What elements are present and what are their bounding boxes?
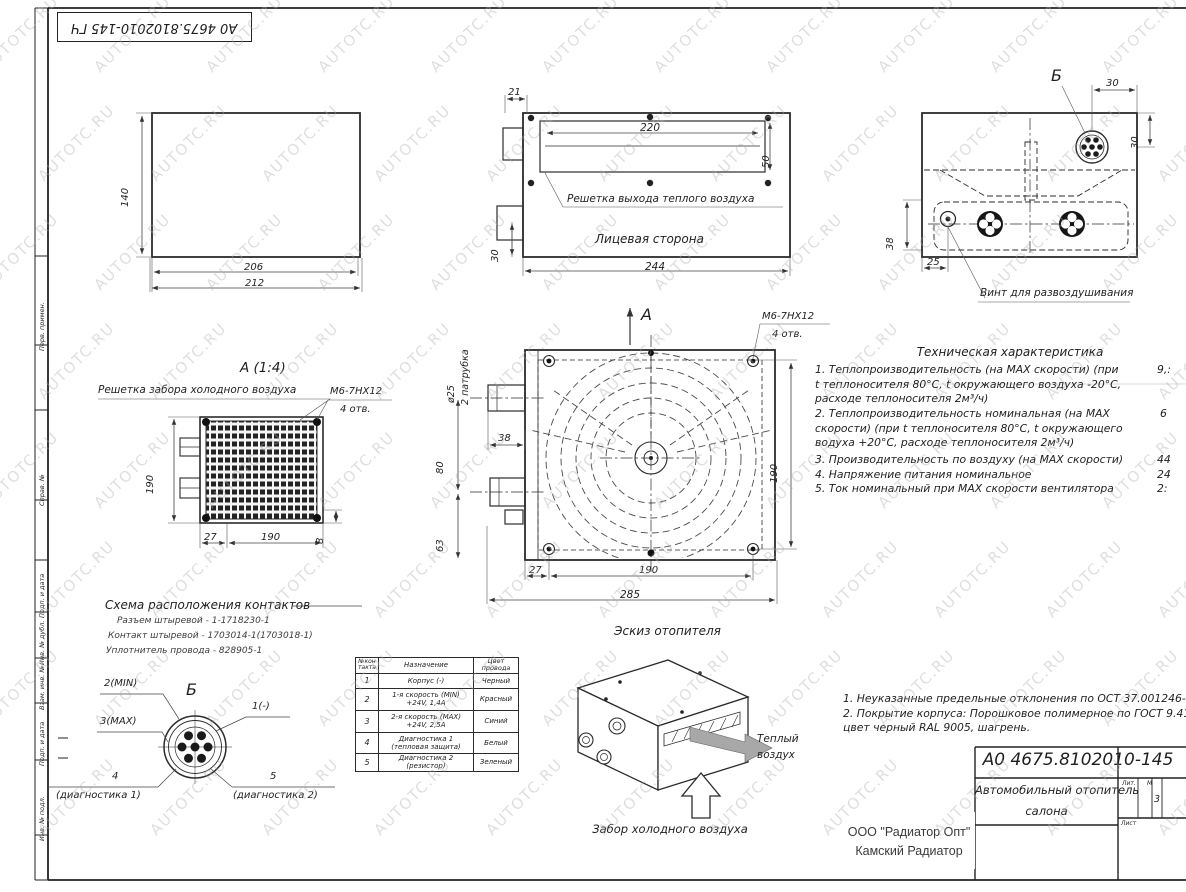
pin-function-line2: (тепловая защита) [380,743,472,751]
tech-value-1: 9,: [1157,363,1186,376]
note-2: 2. Покрытие корпуса: Порошковое полимерн… [843,707,1186,720]
contacts-title: Схема расположения контактов [105,598,310,612]
pin-function-line2: +24V, 1,4А [380,699,472,707]
supplier-box: ООО "Радиатор Опт" Камский Радиатор [843,812,975,869]
pin-function-line2: +24V, 2,5А [380,721,472,729]
pin-function: Корпус (-) [379,673,474,688]
dim-206: 206 [244,262,263,273]
warm-air-label-1: Теплый [757,733,799,745]
dim-190-grille-h: 190 [261,532,280,543]
pipe-qty-label: 2 патрубка [460,349,471,405]
tech-value-3: 44 [1157,453,1186,466]
titleblock-lit-label: Лит. [1122,780,1136,787]
frame-label-vzam-inv: Взам. инв. № [38,666,46,710]
titleblock-name-2: салона [975,804,1118,818]
tech-line-8: 4. Напряжение питания номинальное [815,468,1031,481]
warm-air-label-2: воздух [757,749,795,761]
grille-bolt-label: М6-7НХ12 [330,386,382,397]
pin-function-line1: 2-я скорость (MAX) [380,713,472,721]
dim-27-main: 27 [529,565,542,576]
dim-190-main-h: 190 [639,565,658,576]
tech-value-4: 24 [1157,468,1186,481]
tech-line-5: скорости) (при t теплоносителя 80°С, t о… [815,422,1123,435]
table-row: 1 Корпус (-) Черный [356,673,519,688]
dim-38-main: 38 [498,433,511,444]
frame-label-perv-primen: Перв. примен. [38,302,46,351]
pin-number: 3 [356,710,379,732]
note-2-cont: цвет черный RAL 9005, шагрень. [843,721,1030,734]
dim-30-conn-x: 30 [1106,78,1119,89]
tech-line-7: 3. Производительность по воздуху (на MAX… [815,453,1123,466]
pin5-note-label: (диагностика 2) [233,790,318,801]
detail-b-label: Б [1051,66,1062,85]
front-grille-label: Решетка выхода теплого воздуха [567,193,754,205]
dim-212: 212 [245,278,264,289]
dim-244: 244 [645,261,665,273]
grille-view-drawing [98,399,392,548]
tech-spec-title: Техническая характеристика [900,345,1120,359]
contact-table: №кон такта Назначение Цвет провода 1 Кор… [355,657,519,772]
supplier-line-2: Камский Радиатор [843,842,975,861]
dim-25: 25 [927,257,940,268]
note-1: 1. Неуказанные предельные отклонения по … [843,692,1186,705]
front-face-label: Лицевая сторона [592,232,707,246]
pin-function-line1: Диагностика 2 [380,754,472,762]
pin-function-line1: Диагностика 1 [380,735,472,743]
tech-line-2: t теплоносителя 80°С, t окружающего возд… [815,378,1121,391]
pin-function: Диагностика 1(тепловая защита) [379,732,474,753]
dim-30-conn-y: 30 [1130,136,1141,149]
tech-value-2: 6 [1160,407,1186,420]
top-stamp: А0 4675.8102010-145 ГЧ [57,12,252,42]
dim-21: 21 [508,87,521,98]
frame-label-podp-data-2: Подп. и дата [38,722,46,766]
pin-wire-color: Синий [474,710,519,732]
dim-8-grille: 8 [315,538,326,544]
dim-190-main-v: 190 [769,464,780,483]
frame-label-inv-podl: Инв. № подл. [38,796,46,841]
titleblock-designation: А0 4675.8102010-145 [978,750,1178,770]
titleblock-sheet-label: Лист [1121,820,1136,827]
table-row: 5 Диагностика 2(резистор) Зеленый [356,753,519,771]
drawing-sheet: { "watermark": "AUTOTC.RU", "sheet": { "… [0,0,1186,892]
cold-air-label: Забор холодного воздуха [585,822,755,836]
titleblock-mass-label: М [1147,780,1152,787]
grille-label: Решетка забора холодного воздуха [98,384,296,396]
pin4-label: 4 [112,771,118,782]
dim-80-main: 80 [435,461,446,474]
connector-b-label: Б [186,680,197,699]
dim-285-main: 285 [620,589,640,601]
frame-label-inv-dubl: Инв. № дубл. [38,621,46,665]
pin-number: 4 [356,732,379,753]
dim-38-top: 38 [885,237,896,250]
pin2-label: 2(MIN) [104,678,137,689]
titleblock-name-1: Автомобильный отопитель [975,783,1118,797]
pin-number: 1 [356,673,379,688]
pin-number: 5 [356,753,379,771]
iso-sketch-drawing [578,660,772,818]
main-caption: Эскиз отопителя [605,624,730,638]
col-header-color: Цвет провода [474,658,519,674]
main-holes-label: 4 отв. [772,329,803,340]
top-view-drawing [903,85,1155,302]
dim-30-pipe: 30 [490,249,501,262]
pin1-label: 1(-) [252,701,270,712]
stamp-designation: А0 4675.8102010-145 ГЧ [71,20,237,35]
pin-number: 2 [356,688,379,710]
col-header-function: Назначение [379,658,474,674]
pin-function: Диагностика 2(резистор) [379,753,474,771]
pin-wire-color: Зеленый [474,753,519,771]
frame-label-podp-data-1: Подп. и дата [38,574,46,618]
tech-line-9: 5. Ток номинальный при MAX скорости вент… [815,482,1114,495]
table-header-row: №кон такта Назначение Цвет провода [356,658,519,674]
tech-line-4: 2. Теплопроизводительность номинальная (… [815,407,1110,420]
pin3-label: 3(MAX) [100,716,136,727]
pin-function: 1-я скорость (MIN)+24V, 1,4А [379,688,474,710]
pin-function-line1: 1-я скорость (MIN) [380,691,472,699]
dim-63-main: 63 [435,539,446,552]
pin-function: 2-я скорость (MAX)+24V, 2,5А [379,710,474,732]
dim-220: 220 [640,122,660,134]
section-a-label: А [641,305,652,324]
contacts-spec-3: Уплотнитель провода - 828905-1 [106,646,262,656]
dim-27-grille: 27 [204,532,217,543]
grille-view-title: А (1:4) [240,360,286,376]
dim-190-grille-v: 190 [145,475,156,494]
col-header-pin: №кон такта [356,658,379,674]
tech-line-3: расходе теплоносителя 2м³/ч) [815,392,988,405]
tech-line-1: 1. Теплопроизводительность (на MAX скоро… [815,363,1119,376]
frame-label-sprav-no: Справ. № [38,474,46,506]
titleblock-sheets-value: 3 [1154,794,1160,805]
main-bolt-label: М6-7НХ12 [762,311,814,322]
vint-label: Винт для развоздушивания [980,287,1133,299]
table-row: 2 1-я скорость (MIN)+24V, 1,4А Красный [356,688,519,710]
grille-holes-label: 4 отв. [340,404,371,415]
pin-function-line1: Корпус (-) [380,677,472,685]
table-row: 3 2-я скорость (MAX)+24V, 2,5А Синий [356,710,519,732]
dim-50: 50 [761,155,772,168]
dim-140: 140 [120,188,131,207]
table-row: 4 Диагностика 1(тепловая защита) Белый [356,732,519,753]
contacts-spec-2: Контакт штыревой - 1703014-1(1703018-1) [108,631,313,641]
pin-function-line2: (резистор) [380,762,472,770]
tech-value-5: 2: [1157,482,1186,495]
pin-wire-color: Черный [474,673,519,688]
pin-wire-color: Белый [474,732,519,753]
pin5-label: 5 [270,771,276,782]
supplier-line-1: ООО "Радиатор Опт" [843,823,975,842]
pipe-dia-label: ø25 [446,385,457,403]
pin4-note-label: (диагностика 1) [56,790,141,801]
tech-line-6: водуха +20°С, расходе теплоносителя 2м³/… [815,436,1074,449]
pin-wire-color: Красный [474,688,519,710]
main-view-drawing [458,308,830,604]
contacts-spec-1: Разъем штыревой - 1-1718230-1 [117,616,270,626]
